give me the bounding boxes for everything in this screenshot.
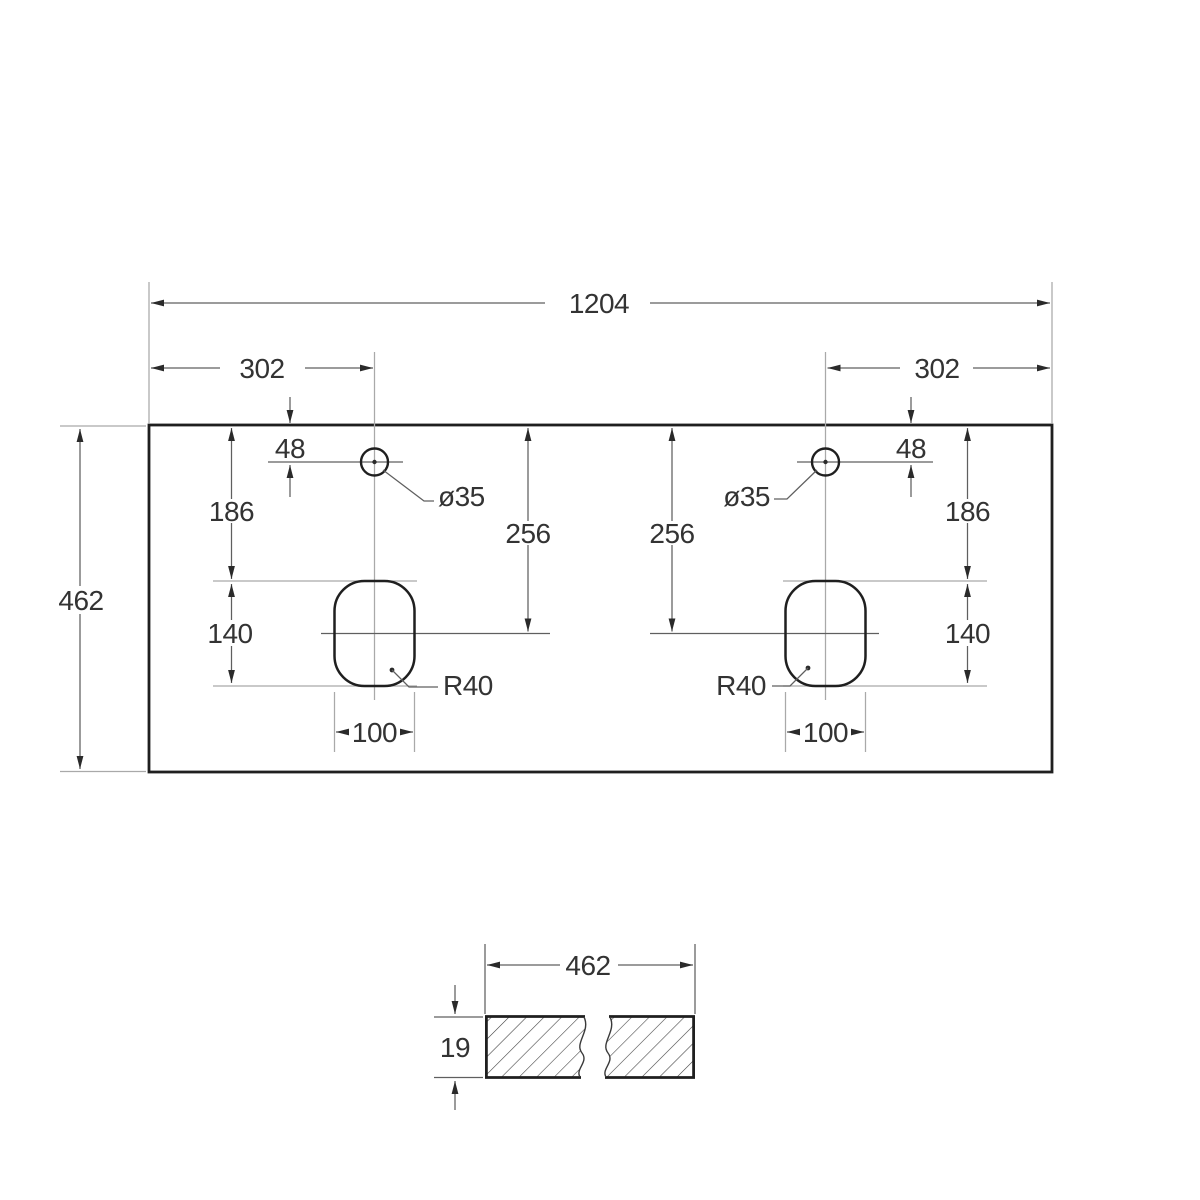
dim-cutout-center-depth-right-label: 256 (649, 518, 694, 549)
dim-hole-offset-right-label: 302 (914, 353, 959, 384)
dim-cutout-length-left-label: 140 (207, 618, 252, 649)
corner-radius-left-label: R40 (443, 670, 493, 701)
hole-diameter-left-label: ø35 (438, 481, 485, 512)
hole-diameter-right-label: ø35 (723, 481, 770, 512)
dim-hole-setback-left-label: 48 (275, 433, 305, 464)
dim-cutout-width-left-label: 100 (352, 717, 397, 748)
dim-cutout-width-right-label: 100 (803, 717, 848, 748)
dim-cutout-top-offset-left-label: 186 (209, 496, 254, 527)
corner-radius-right-label: R40 (716, 670, 766, 701)
technical-drawing-canvas: 1204 302 302 48 48 ø35 (0, 0, 1200, 1200)
dim-section-width-label: 462 (565, 950, 610, 981)
technical-drawing-page: 1204 302 302 48 48 ø35 (0, 0, 1200, 1200)
dim-hole-offset-left-label: 302 (239, 353, 284, 384)
left-hole-center-dot (372, 460, 376, 464)
page-background (0, 0, 1200, 1200)
dim-cutout-center-depth-left-label: 256 (505, 518, 550, 549)
right-hole-center-dot (823, 460, 827, 464)
section-slab-left-hatch (485, 1017, 586, 1077)
dim-overall-depth-label: 462 (58, 585, 103, 616)
dim-section-thickness-label: 19 (440, 1032, 470, 1063)
dim-hole-setback-right-label: 48 (896, 433, 926, 464)
dim-overall-width-label: 1204 (569, 288, 629, 319)
dim-cutout-top-offset-right-label: 186 (945, 496, 990, 527)
section-slab-right-hatch (605, 1017, 695, 1077)
dim-cutout-length-right-label: 140 (945, 618, 990, 649)
